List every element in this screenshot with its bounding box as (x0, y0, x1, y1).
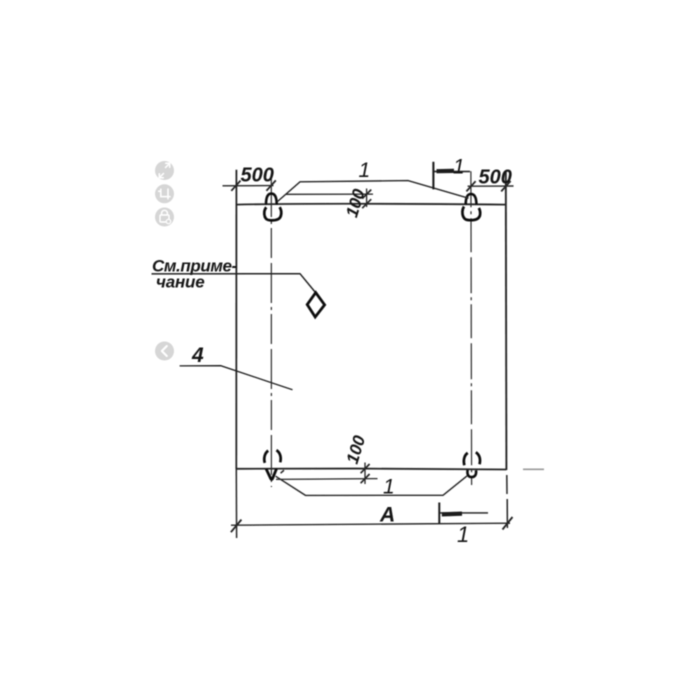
svg-text:500: 500 (241, 165, 274, 187)
svg-text:1: 1 (383, 476, 395, 499)
svg-text:чание: чание (156, 273, 204, 292)
svg-text:1: 1 (453, 156, 465, 179)
svg-text:1: 1 (359, 159, 371, 182)
svg-text:500: 500 (479, 166, 512, 188)
svg-text:100: 100 (343, 433, 370, 466)
svg-text:100: 100 (342, 186, 369, 219)
svg-text:4: 4 (191, 344, 204, 367)
svg-text:1: 1 (457, 522, 469, 547)
svg-text:А: А (379, 504, 395, 527)
